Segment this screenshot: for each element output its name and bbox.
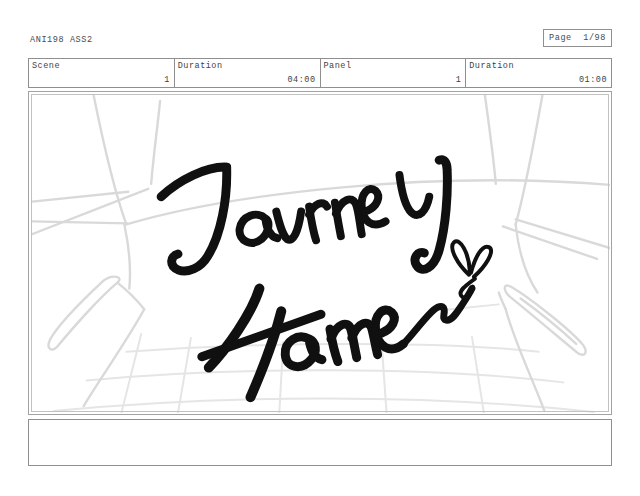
meta-cell-scene: Scene 1 xyxy=(29,59,175,87)
butterfly-doodle xyxy=(452,241,491,297)
drawing-text-line1: Journey xyxy=(29,92,30,93)
meta-value-panel-duration: 01:00 xyxy=(579,75,607,85)
meta-label-panel: Panel xyxy=(324,61,352,71)
production-code: ANI198 ASS2 xyxy=(30,35,93,45)
notes-box xyxy=(28,419,612,466)
title-lettering-home xyxy=(202,289,472,398)
meta-value-scene-duration: 04:00 xyxy=(287,75,315,85)
meta-value-panel: 1 xyxy=(456,75,462,85)
panel-drawing xyxy=(32,95,610,413)
meta-label-scene: Scene xyxy=(32,61,60,71)
meta-label-panel-duration: Duration xyxy=(469,61,514,71)
drawing-text-line2: Home~ xyxy=(29,92,30,93)
meta-cell-scene-duration: Duration 04:00 xyxy=(175,59,321,87)
meta-cell-panel-duration: Duration 01:00 xyxy=(466,59,611,87)
meta-label-scene-duration: Duration xyxy=(178,61,223,71)
title-lettering-journey xyxy=(161,160,447,271)
meta-value-scene: 1 xyxy=(164,75,170,85)
page-indicator: Page 1/98 xyxy=(543,29,612,47)
storyboard-sheet: ANI198 ASS2 Page 1/98 Scene 1 Duration 0… xyxy=(0,0,640,496)
notes-text xyxy=(29,420,30,421)
meta-cell-panel: Panel 1 xyxy=(321,59,467,87)
meta-table: Scene 1 Duration 04:00 Panel 1 Duration … xyxy=(28,58,612,88)
storyboard-panel: Journey Home~ xyxy=(28,91,612,415)
